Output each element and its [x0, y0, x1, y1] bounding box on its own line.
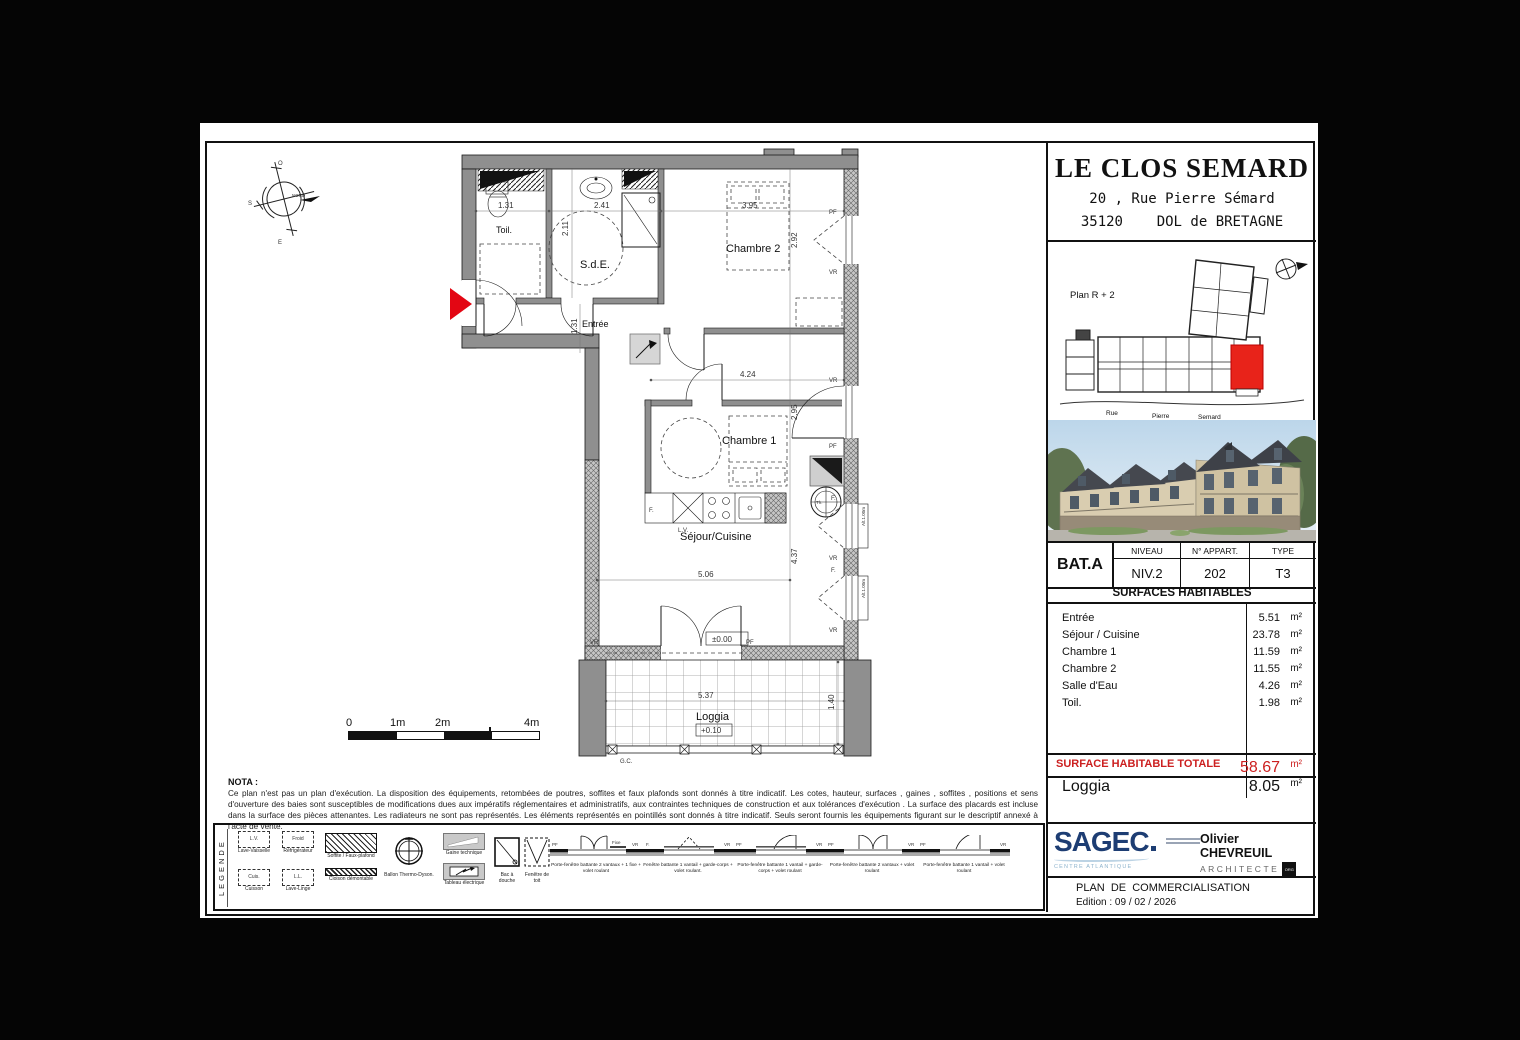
tag-f-sej1: F. [831, 496, 836, 502]
window-caption: Porte-fenêtre battante 2 vantaux + 1 fix… [550, 863, 642, 875]
logos-row: SAGEC CENTRE ATLANTIQUE Olivier CHEVREUI… [1048, 822, 1316, 878]
railing-label: G.C. [620, 759, 633, 765]
svg-text:PF: PF [552, 842, 558, 847]
legend-gaine: Gaine technique Tableau électrique [436, 833, 492, 907]
tag-vr-sej1: VR [829, 556, 838, 562]
roof-window-icon [524, 837, 550, 867]
svg-text:PF: PF [920, 842, 926, 847]
duct-icon [443, 833, 485, 850]
site-unit-loggia [1236, 389, 1258, 396]
water-heater-icon [393, 835, 425, 867]
room-unit: m² [1290, 612, 1302, 623]
total-unit: m² [1290, 759, 1302, 770]
room-unit: m² [1290, 629, 1302, 640]
nota-title: NOTA : [228, 777, 1038, 787]
washer-icon: L.L. [282, 869, 314, 886]
building-label: BAT.A [1048, 543, 1114, 587]
window-caption: Porte-fenêtre battante 1 vantail + volet… [918, 863, 1010, 875]
architect-logo: Olivier CHEVREUIL ARCHITECTE ORG [1200, 832, 1312, 876]
room-unit: m² [1290, 680, 1302, 691]
tag-alt2: Alt.1.00m [861, 579, 866, 598]
legend-label: Lave-Vaisselle [232, 849, 276, 855]
room-unit: m² [1290, 646, 1302, 657]
tag-pf-loggia: PF [746, 640, 754, 646]
legend-label: Ballon Thermo-Dyson. [382, 873, 436, 879]
cooktop-icon: Cuis. [238, 869, 270, 886]
soffit-hatch-icon [325, 833, 377, 853]
room-name: Entrée [1062, 612, 1094, 624]
site-upper-wing [1189, 260, 1268, 340]
room-area: 23.78 [1230, 629, 1280, 641]
street-word-2: Pierre [1152, 413, 1170, 420]
value-type: T3 [1250, 559, 1316, 587]
surface-row: Entrée5.51m² [1048, 611, 1316, 628]
room-area: 5.51 [1230, 612, 1280, 624]
room-label-loggia: Loggia [696, 711, 730, 723]
developer-logo: SAGEC CENTRE ATLANTIQUE [1054, 828, 1204, 870]
legend-window-5: PFVR Porte-fenêtre battante 1 vantail + … [918, 835, 1010, 907]
doc-title: PLAN DE COMMERCIALISATION [1076, 882, 1316, 894]
water-heater: Th. [810, 456, 844, 517]
legend-ballon: Ballon Thermo-Dyson. [382, 835, 436, 907]
fridge-icon: Froid [282, 831, 314, 848]
legend: LEGENDE L.V.Lave-Vaisselle FroidRéfrigér… [213, 823, 1045, 911]
dim-ch1-height: 2.95 [790, 404, 799, 420]
project-title: LE CLOS SEMARD [1048, 153, 1316, 184]
site-plan-label: Plan R + 2 [1070, 290, 1115, 301]
svg-text:PF: PF [828, 842, 834, 847]
legend-appliances: L.V.Lave-Vaisselle FroidRéfrigérateur Cu… [232, 831, 320, 907]
developer-name: SAGEC [1054, 826, 1149, 857]
legend-label: Cloison démontable [320, 877, 382, 883]
dim-sde-height: 2.11 [561, 220, 570, 236]
room-label-chambre1: Chambre 1 [722, 435, 776, 447]
water-heater-label: Th. [816, 500, 823, 505]
site-highlighted-unit [1231, 345, 1263, 389]
tag-f-sej2: F. [831, 568, 836, 574]
room-name: Salle d'Eau [1062, 680, 1117, 692]
svg-text:PF: PF [736, 842, 742, 847]
title-block: LE CLOS SEMARD 20 , Rue Pierre Sémard 35… [1048, 143, 1316, 242]
project-address-line1: 20 , Rue Pierre Sémard [1048, 191, 1316, 207]
room-area: 11.55 [1230, 663, 1280, 675]
room-unit: m² [1290, 697, 1302, 708]
loggia-unit: m² [1290, 778, 1302, 789]
legend-label: Lave-Linge [276, 887, 320, 893]
scale-bar: 0 1m 2m 4m [348, 717, 540, 740]
dim-sejour-height: 4.37 [790, 548, 799, 564]
room-label-sejour: Séjour/Cuisine [680, 531, 752, 543]
plan-sheet: O S E NORD [200, 123, 1318, 918]
dim-ch1-width: 4.24 [740, 370, 756, 379]
dim-sejour-width: 5.06 [698, 570, 714, 579]
window-caption: Porte-fenêtre battante 2 vantaux + volet… [826, 863, 918, 875]
room-area: 4.26 [1230, 680, 1280, 692]
architect-name: Olivier CHEVREUIL [1200, 832, 1312, 860]
tag-vr-sej2: VR [829, 628, 838, 634]
kitchen-counter [645, 493, 786, 523]
right-column: LE CLOS SEMARD 20 , Rue Pierre Sémard 35… [1046, 143, 1316, 912]
window-symbol-icon: PFVR [734, 835, 826, 857]
window-symbol-icon: F.VR [642, 835, 734, 857]
level-sejour: ±0.00 [712, 635, 733, 644]
building-photo [1048, 420, 1316, 541]
scale-2m: 2m [435, 717, 450, 729]
level-loggia: +0.10 [701, 726, 722, 735]
legend-window-1: PFFixeVR Porte-fenêtre battante 2 vantau… [550, 835, 642, 907]
shower-tray-icon [494, 837, 520, 867]
legend-window-2: F.VR Fenêtre battante 1 vantail + garde-… [642, 835, 734, 907]
value-niveau: NIV.2 [1114, 559, 1181, 587]
developer-tagline [1166, 836, 1200, 846]
partition-hatch-icon [325, 868, 377, 876]
legend-window-3: PFVR Porte-fenêtre battante 1 vantail + … [734, 835, 826, 907]
surface-row: Salle d'Eau4.26m² [1048, 679, 1316, 696]
architect-title: ARCHITECTE [1200, 864, 1279, 874]
logo-dot [1151, 846, 1156, 851]
dim-toil-width: 1.31 [498, 201, 514, 210]
svg-text:F.: F. [646, 842, 650, 847]
col-header-type: TYPE [1250, 543, 1316, 559]
legend-label: Soffite / Faux-plafond [320, 854, 382, 860]
window-symbol-icon: PFVR [826, 835, 918, 857]
compass-west-label: O [278, 161, 283, 167]
legend-label: Bac à douche [494, 873, 520, 884]
window-caption: Fenêtre battante 1 vantail + garde-corps… [642, 863, 734, 875]
legend-window-4: PFVR Porte-fenêtre battante 2 vantaux + … [826, 835, 918, 907]
developer-region: CENTRE ATLANTIQUE [1054, 864, 1204, 870]
street-word-1: Rue [1106, 410, 1118, 417]
room-name: Chambre 2 [1062, 663, 1116, 675]
dishwasher-icon: L.V. [238, 831, 270, 848]
loggia-label: Loggia [1062, 778, 1110, 796]
total-label: SURFACE HABITABLE TOTALE [1056, 758, 1220, 770]
site-annex [1066, 330, 1094, 390]
tag-pf-ch2: PF [829, 210, 837, 216]
room-label-entree: Entrée [582, 319, 609, 329]
window-caption: Porte-fenêtre battante 1 vantail + garde… [734, 863, 826, 875]
svg-text:VR: VR [908, 842, 915, 847]
doc-edition: Edition : 09 / 02 / 2026 [1076, 897, 1316, 908]
svg-text:VR: VR [816, 842, 823, 847]
tag-vr-ch1: VR [829, 378, 838, 384]
dim-loggia-width: 5.37 [698, 691, 714, 700]
dim-ch2-height: 2.92 [790, 232, 799, 248]
window-symbol-icon: PFVR [918, 835, 1010, 857]
electrical-panel-icon [443, 863, 485, 880]
tag-vr-loggia: VR [590, 640, 599, 646]
scale-0: 0 [346, 717, 352, 729]
legend-label: Cuisson [232, 887, 276, 893]
scale-bar-strip [348, 731, 540, 740]
surface-row: Chambre 211.55m² [1048, 662, 1316, 679]
legend-shower-roof: Bac à douche Fenêtre de toit [492, 833, 550, 907]
tag-vr-ch2: VR [829, 270, 838, 276]
scale-4m: 4m [524, 717, 539, 729]
street-line [1060, 400, 1304, 405]
dim-sde-width: 2.41 [594, 201, 610, 210]
window-symbol-icon: PFFixeVR [550, 835, 642, 857]
room-label-chambre2: Chambre 2 [726, 243, 780, 255]
unit-table: BAT.A NIVEAU N° APPART. TYPE NIV.2 202 T… [1048, 541, 1316, 589]
legend-title: LEGENDE [217, 829, 228, 907]
room-name: Toil. [1062, 697, 1082, 709]
svg-text:VR: VR [632, 842, 639, 847]
dim-entree-height: 1.31 [570, 318, 579, 334]
entrance-door [462, 280, 522, 326]
room-name: Séjour / Cuisine [1062, 629, 1140, 641]
tag-frigo: F. [649, 508, 654, 514]
tag-pf-ch1: PF [829, 444, 837, 450]
legend-label: Tableau électrique [436, 881, 492, 887]
dim-ch2-width: 3.95 [742, 201, 758, 210]
legend-label: Fenêtre de toit [524, 873, 550, 884]
surfaces-list: Entrée5.51m² Séjour / Cuisine23.78m² Cha… [1048, 602, 1316, 753]
room-area: 11.59 [1230, 646, 1280, 658]
svg-text:Fixe: Fixe [612, 840, 621, 845]
surface-row: Toil.1.98m² [1048, 696, 1316, 713]
scale-1m: 1m [390, 717, 405, 729]
legend-label: Réfrigérateur [276, 849, 320, 855]
col-header-niveau: NIVEAU [1114, 543, 1181, 559]
surface-row: Séjour / Cuisine23.78m² [1048, 628, 1316, 645]
svg-text:VR: VR [724, 842, 731, 847]
legend-soffit: Soffite / Faux-plafond Cloison démontabl… [320, 833, 382, 907]
compass-rose: O S E NORD [248, 153, 326, 245]
room-label-toil: Toil. [496, 225, 512, 235]
compass-east-label: E [278, 240, 282, 245]
loggia-area-value: 8.05 [1230, 778, 1280, 796]
surface-row: Chambre 111.59m² [1048, 645, 1316, 662]
tag-alt1: Alt.1.00m [861, 507, 866, 526]
room-label-sde: S.d.E. [580, 259, 610, 271]
col-header-appart: N° APPART. [1181, 543, 1250, 559]
project-address-line2: 35120 DOL de BRETAGNE [1048, 214, 1316, 230]
tag-lv: L.V. [678, 528, 688, 534]
room-unit: m² [1290, 663, 1302, 674]
room-name: Chambre 1 [1062, 646, 1116, 658]
dim-loggia-height: 1.40 [827, 694, 836, 710]
compass-north-label: NORD [292, 193, 306, 198]
site-plan: Plan R + 2 [1048, 242, 1316, 420]
site-compass-icon [1276, 259, 1308, 279]
compass-south-label: S [248, 201, 252, 207]
value-appart: 202 [1181, 559, 1250, 587]
legend-label: Gaine technique [436, 851, 492, 857]
screenshot-root: { "title_block": { "project": "LE CLOS S… [0, 0, 1520, 1040]
svg-text:VR: VR [1000, 842, 1007, 847]
room-area: 1.98 [1230, 697, 1280, 709]
floor-plan: Th. G.C. [446, 148, 1066, 766]
doc-footer: PLAN DE COMMERCIALISATION Edition : 09 /… [1048, 874, 1316, 908]
loggia-row: Loggia 8.05 m² [1048, 774, 1316, 797]
